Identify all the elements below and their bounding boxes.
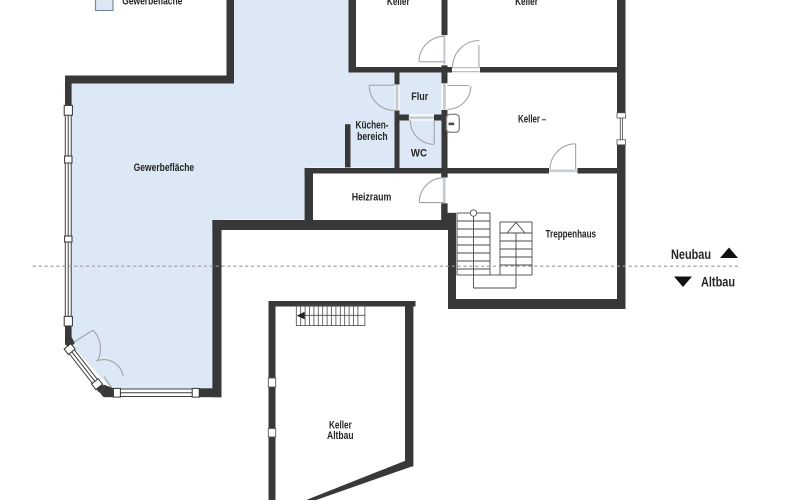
svg-text:Altbau: Altbau — [327, 430, 354, 442]
svg-text:Gewerbefläche: Gewerbefläche — [134, 162, 195, 174]
svg-text:Neubau: Neubau — [671, 247, 711, 262]
svg-text:Keller: Keller — [518, 114, 541, 126]
svg-text:bereich: bereich — [357, 131, 388, 143]
svg-text:Heizraum: Heizraum — [352, 191, 392, 203]
svg-text:Altbau: Altbau — [701, 275, 735, 290]
svg-text:Flur: Flur — [411, 91, 429, 103]
svg-text:Keller: Keller — [515, 0, 538, 8]
svg-text:Gewerbefläche: Gewerbefläche — [122, 0, 182, 8]
svg-text:Treppenhaus: Treppenhaus — [546, 229, 597, 241]
svg-text:Küchen-: Küchen- — [356, 120, 389, 132]
svg-text:Keller: Keller — [387, 0, 410, 8]
svg-text:WC: WC — [411, 147, 427, 159]
